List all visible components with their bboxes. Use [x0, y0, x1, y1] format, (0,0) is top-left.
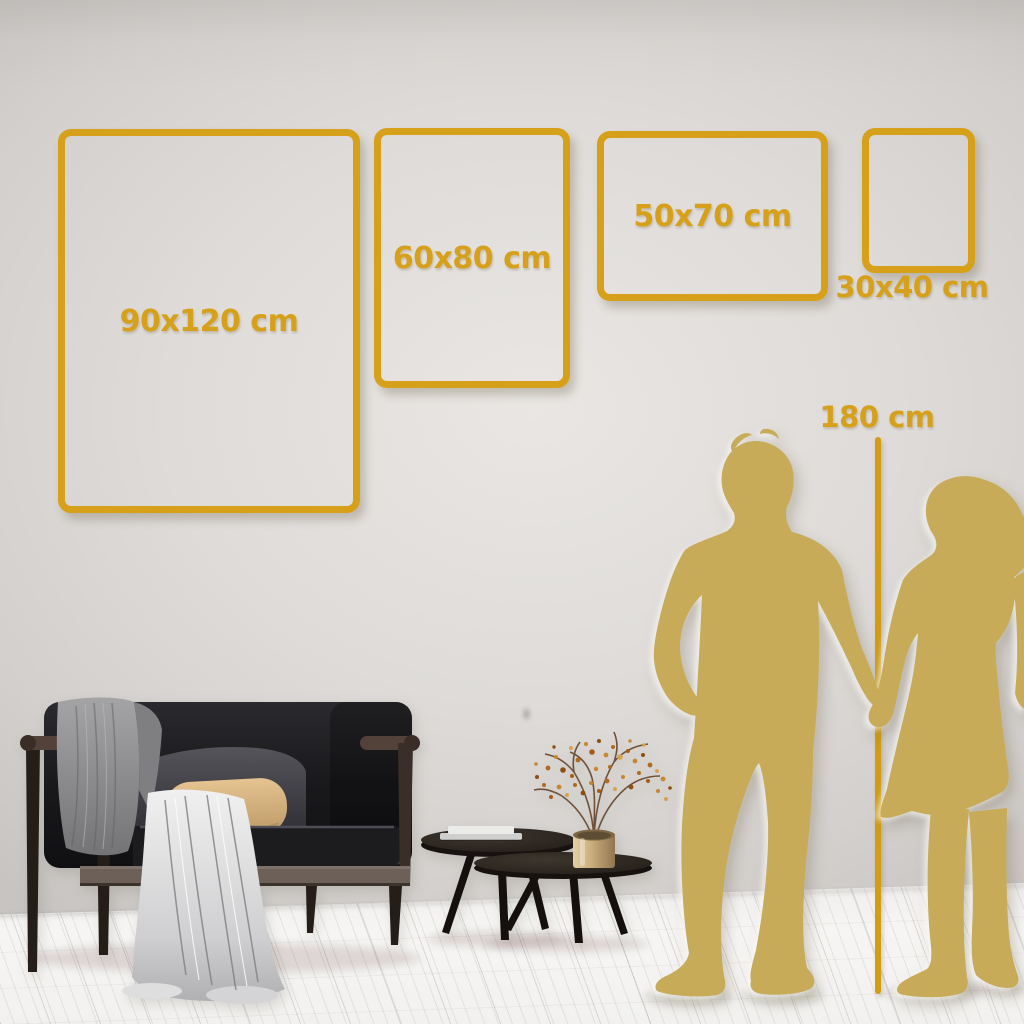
sofa-base-rail	[80, 866, 410, 886]
height-ruler-label: 180 cm	[797, 400, 957, 434]
size-guide-scene: 90x120 cm 60x80 cm 50x70 cm 30x40 cm 180…	[0, 0, 1024, 1024]
dried-branch-plant	[534, 732, 660, 836]
size-label-60x80: 60x80 cm	[393, 241, 551, 276]
size-label-30x40: 30x40 cm	[832, 270, 992, 304]
height-ruler-line	[875, 437, 881, 994]
sofa-body	[44, 702, 412, 868]
seat-cushion	[133, 826, 410, 870]
gray-throw-blanket	[57, 698, 162, 856]
gold-vase	[573, 830, 615, 869]
size-frame-90x120: 90x120 cm	[58, 129, 360, 513]
beige-pillow	[164, 777, 289, 839]
book-stack	[440, 826, 522, 841]
size-frame-30x40	[862, 128, 975, 273]
size-frame-60x80: 60x80 cm	[374, 128, 570, 388]
wall-smudge	[521, 706, 532, 722]
size-label-50x70: 50x70 cm	[633, 199, 791, 234]
plant-berries	[534, 739, 672, 801]
size-label-90x120: 90x120 cm	[120, 304, 299, 339]
back-cushion	[131, 747, 306, 832]
size-frame-50x70: 50x70 cm	[597, 131, 828, 301]
